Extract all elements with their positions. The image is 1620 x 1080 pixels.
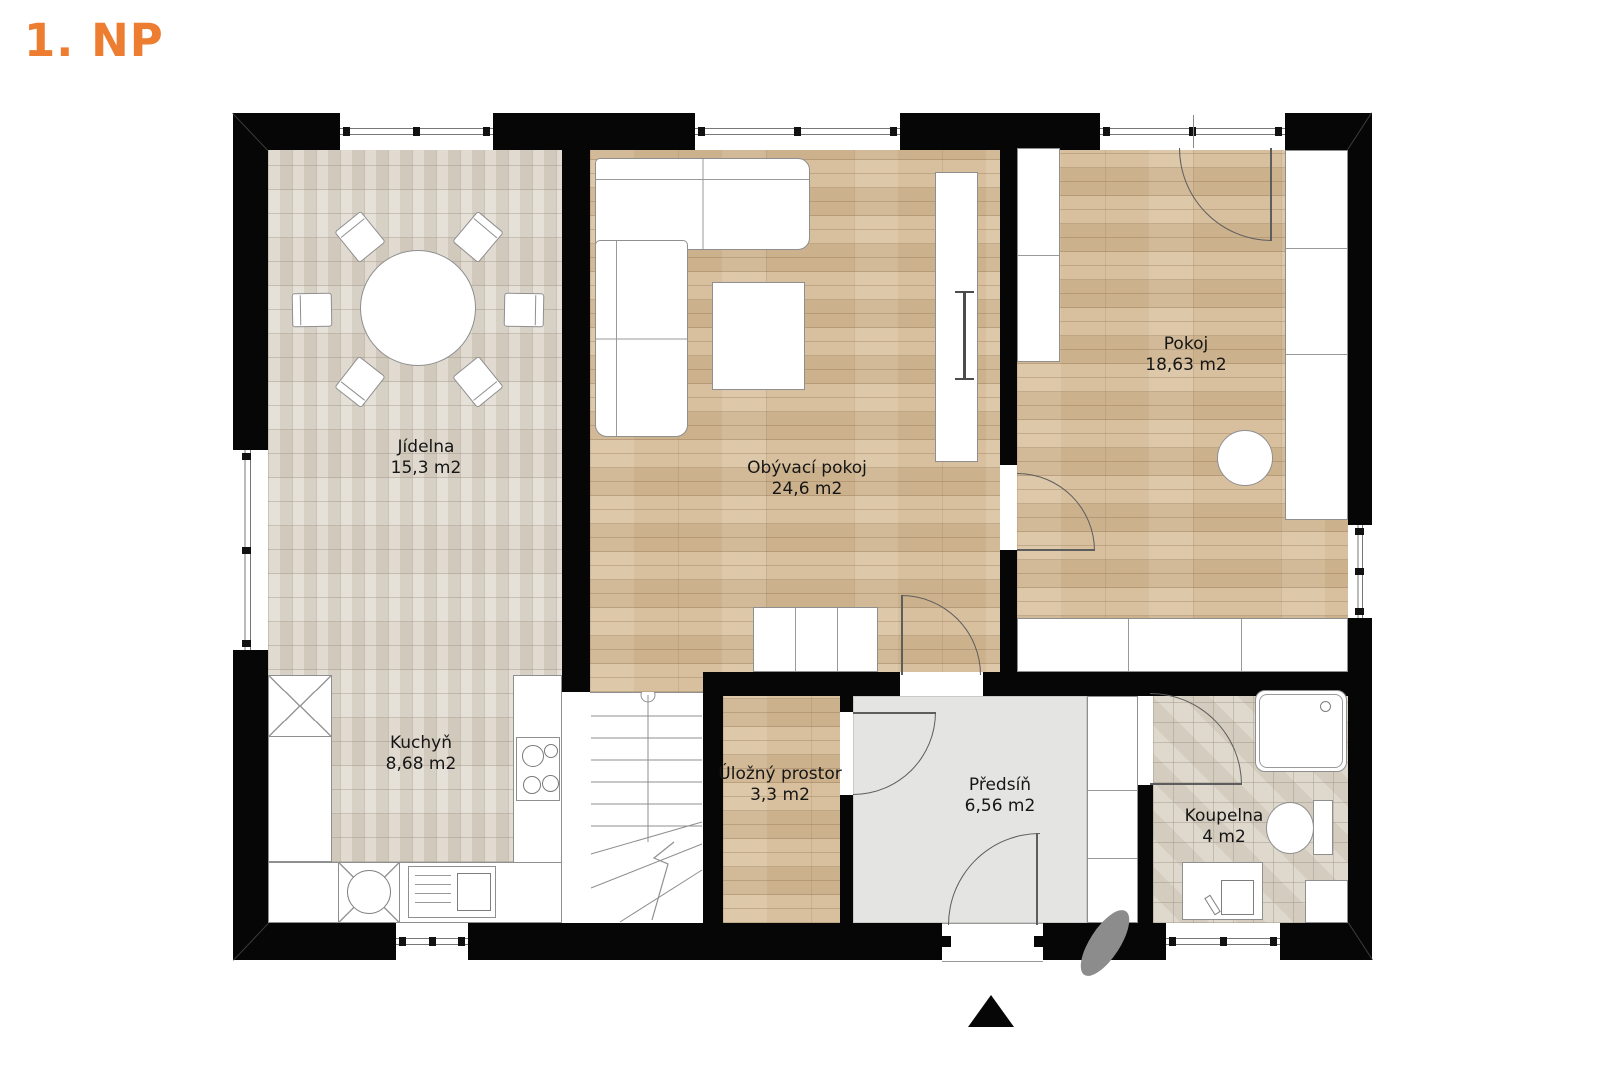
wall [493, 113, 695, 150]
bedroom-wardrobe-bottom [1017, 618, 1348, 672]
shower-drain [1320, 701, 1331, 712]
storage-door-leaf [853, 712, 936, 714]
dishwasher [408, 866, 496, 918]
wall [562, 150, 590, 692]
north-arrow-icon [968, 995, 1014, 1027]
room-name: Pokoj [1145, 334, 1226, 355]
vanity-basin [1221, 880, 1254, 915]
dining-table [360, 250, 476, 366]
window-living [695, 113, 900, 150]
balcony-door-leaf [1270, 148, 1272, 241]
wall [233, 113, 268, 450]
wall [233, 650, 268, 960]
room-area: 24,6 m2 [747, 479, 867, 500]
sink-basin [347, 870, 391, 914]
room-name: Obývací pokoj [747, 458, 867, 479]
cooktop [516, 737, 560, 801]
window-divider [1193, 115, 1194, 148]
entrance-door-leaf [1036, 833, 1038, 925]
room-label-predsin: Předsíň 6,56 m2 [965, 775, 1036, 817]
wall [1000, 150, 1017, 465]
wall [840, 696, 853, 712]
dishwasher-vents [415, 875, 451, 911]
storage-floor [723, 696, 840, 923]
door-jamb [1034, 936, 1043, 947]
door-jamb [942, 936, 951, 947]
room-name: Úložný prostor [718, 764, 841, 785]
burner [522, 745, 544, 767]
storage-door-opening [840, 712, 853, 795]
window-dining [340, 113, 493, 150]
room-label-ulozny-prostor: Úložný prostor 3,3 m2 [718, 764, 841, 806]
bathroom-door-leaf [1150, 783, 1242, 785]
burner [523, 776, 541, 794]
tv-icon [963, 292, 966, 380]
bedroom-round-table [1217, 430, 1273, 486]
toilet-tank [1313, 800, 1333, 855]
room-label-koupelna: Koupelna 4 m2 [1185, 806, 1264, 848]
tv-icon [955, 291, 974, 293]
window-dining-left [233, 450, 262, 650]
wall [703, 672, 900, 696]
staircase [590, 692, 703, 923]
kitchen-sink-unit [338, 862, 400, 923]
room-label-obyvaci-pokoj: Obývací pokoj 24,6 m2 [747, 458, 867, 500]
shower [1255, 690, 1347, 772]
bedroom-door-opening [1000, 465, 1017, 550]
room-area: 4 m2 [1185, 827, 1264, 848]
living-door-opening [900, 672, 983, 696]
wall [1000, 550, 1017, 672]
sofa-left-section [595, 240, 688, 437]
burner [542, 775, 559, 792]
wall [1138, 785, 1153, 923]
room-area: 15,3 m2 [391, 458, 462, 479]
room-name: Kuchyň [386, 733, 457, 754]
room-name: Předsíň [965, 775, 1036, 796]
kitchen-passage [562, 692, 590, 923]
floor-title: 1. NP [24, 14, 164, 67]
living-door-leaf [901, 595, 903, 675]
room-area: 3,3 m2 [718, 785, 841, 806]
window-bathroom-bottom [1166, 923, 1280, 960]
room-label-kuchyn: Kuchyň 8,68 m2 [386, 733, 457, 775]
hallway-closet [1087, 696, 1138, 923]
bedroom-wardrobe-left [1017, 148, 1060, 362]
floorplan-canvas: 1. NP [0, 0, 1620, 1080]
closet-divider [1088, 858, 1137, 859]
wall [468, 923, 942, 960]
room-label-jidelna: Jídelna 15,3 m2 [391, 437, 462, 479]
window-bedroom-right [1348, 525, 1372, 618]
coffee-table [712, 282, 805, 390]
room-name: Koupelna [1185, 806, 1264, 827]
wall [703, 696, 723, 923]
balcony-door-window [1100, 113, 1285, 150]
room-area: 18,63 m2 [1145, 355, 1226, 376]
wall [840, 795, 853, 923]
dining-chair [504, 293, 545, 328]
room-label-pokoj: Pokoj 18,63 m2 [1145, 334, 1226, 376]
kitchen-tall-cabinet [268, 675, 332, 737]
tv-bench [935, 172, 978, 462]
closet-divider [1088, 790, 1137, 791]
window-kitchen-bottom [396, 923, 468, 960]
sofa-top-section [595, 158, 810, 250]
bedroom-desk-unit [1285, 150, 1348, 520]
dining-chair [292, 293, 333, 328]
bathroom-cabinet [1305, 880, 1348, 923]
bathroom-vanity [1182, 862, 1263, 920]
tv-icon [955, 378, 974, 380]
wall [1348, 618, 1372, 960]
burner [544, 744, 558, 758]
room-area: 6,56 m2 [965, 796, 1036, 817]
dishwasher-panel [457, 873, 491, 911]
room-area: 8,68 m2 [386, 754, 457, 775]
wall [900, 113, 1100, 150]
sideboard [753, 607, 878, 672]
entrance-door-opening [942, 923, 1043, 962]
room-name: Jídelna [391, 437, 462, 458]
toilet-bowl [1266, 802, 1314, 854]
wall [1348, 113, 1372, 525]
vanity-faucet [1204, 895, 1221, 916]
bedroom-door-leaf [1017, 549, 1095, 551]
